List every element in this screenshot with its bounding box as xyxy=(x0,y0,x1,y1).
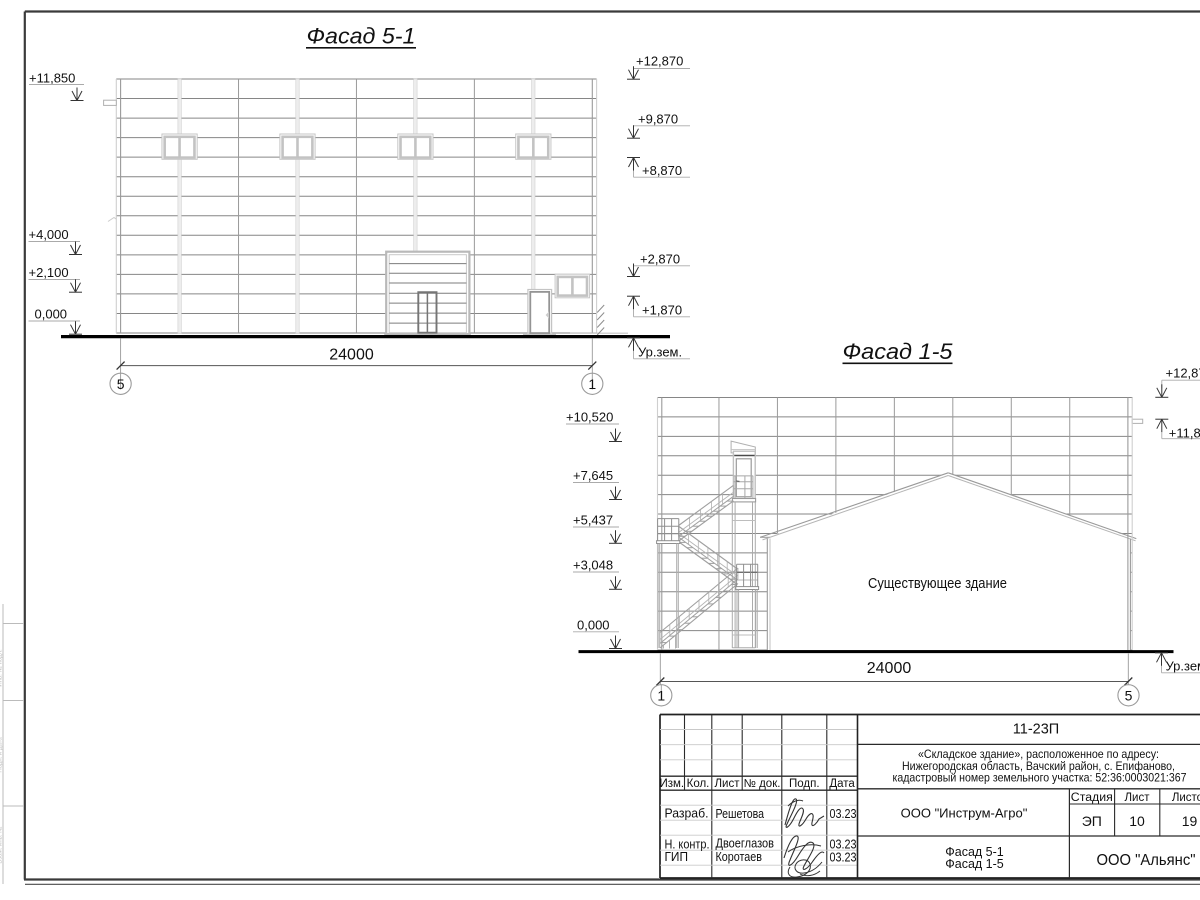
svg-text:11-23П: 11-23П xyxy=(1013,722,1059,738)
svg-text:Коротаев: Коротаев xyxy=(716,850,763,864)
svg-text:Лист: Лист xyxy=(1125,792,1151,804)
svg-text:5: 5 xyxy=(117,376,125,392)
svg-text:Взам. инв. №: Взам. инв. № xyxy=(0,826,4,863)
svg-text:Решетова: Решетова xyxy=(716,807,765,821)
svg-text:03.23: 03.23 xyxy=(830,837,857,851)
svg-text:Изм.: Изм. xyxy=(659,778,684,790)
svg-text:1: 1 xyxy=(657,687,665,703)
svg-text:+9,870: +9,870 xyxy=(638,112,678,127)
svg-text:Фасад 1-5: Фасад 1-5 xyxy=(843,339,954,364)
svg-text:Лист: Лист xyxy=(715,778,741,790)
svg-text:+1,870: +1,870 xyxy=(642,303,682,318)
svg-text:+3,048: +3,048 xyxy=(573,558,613,573)
svg-text:ЭП: ЭП xyxy=(1082,813,1102,829)
svg-text:+12,870: +12,870 xyxy=(1166,366,1200,381)
svg-text:ООО "Альянс": ООО "Альянс" xyxy=(1097,852,1196,869)
svg-text:10: 10 xyxy=(1129,813,1145,829)
svg-text:24000: 24000 xyxy=(867,660,912,677)
svg-text:Разраб.: Разраб. xyxy=(665,806,709,820)
svg-text:+10,520: +10,520 xyxy=(566,410,613,425)
svg-text:№ док.: № док. xyxy=(744,778,781,790)
svg-text:24000: 24000 xyxy=(329,347,374,364)
svg-text:+2,870: +2,870 xyxy=(640,252,680,267)
svg-text:+11,850: +11,850 xyxy=(1169,426,1200,441)
svg-text:Фасад 5-1: Фасад 5-1 xyxy=(307,24,416,49)
svg-text:Ур.зем.: Ур.зем. xyxy=(638,345,682,360)
svg-text:Существующее здание: Существующее здание xyxy=(868,576,1007,592)
svg-text:+8,870: +8,870 xyxy=(642,163,682,178)
svg-text:+7,645: +7,645 xyxy=(573,468,613,483)
svg-text:0,000: 0,000 xyxy=(577,618,610,633)
svg-text:+4,000: +4,000 xyxy=(29,227,69,242)
svg-text:Подп. и дата: Подп. и дата xyxy=(0,737,4,773)
svg-text:1: 1 xyxy=(588,376,596,392)
svg-text:Подп.: Подп. xyxy=(789,778,820,790)
svg-text:ГИП: ГИП xyxy=(665,850,689,864)
svg-text:Ур.зем.: Ур.зем. xyxy=(1166,659,1200,674)
svg-text:19: 19 xyxy=(1182,813,1198,829)
svg-text:03.23: 03.23 xyxy=(830,807,857,821)
svg-text:Двоеглазов: Двоеглазов xyxy=(716,837,775,851)
svg-text:+11,850: +11,850 xyxy=(29,71,75,86)
svg-text:03.23: 03.23 xyxy=(830,851,857,865)
svg-text:Листов: Листов xyxy=(1172,792,1200,804)
svg-text:кадастровый номер земельного у: кадастровый номер земельного участка: 52… xyxy=(893,771,1187,785)
svg-text:Инв. № подл.: Инв. № подл. xyxy=(0,649,4,687)
svg-text:5: 5 xyxy=(1125,687,1133,703)
svg-text:Дата: Дата xyxy=(829,778,855,790)
svg-text:+5,437: +5,437 xyxy=(573,513,613,528)
svg-text:0,000: 0,000 xyxy=(35,307,68,322)
svg-text:Кол.: Кол. xyxy=(687,778,710,790)
svg-text:Фасад 1-5: Фасад 1-5 xyxy=(945,857,1004,871)
svg-text:Стадия: Стадия xyxy=(1071,792,1113,804)
svg-text:+2,100: +2,100 xyxy=(29,265,69,280)
svg-text:ООО "Инструм-Агро": ООО "Инструм-Агро" xyxy=(901,806,1028,821)
svg-text:+12,870: +12,870 xyxy=(636,54,683,69)
